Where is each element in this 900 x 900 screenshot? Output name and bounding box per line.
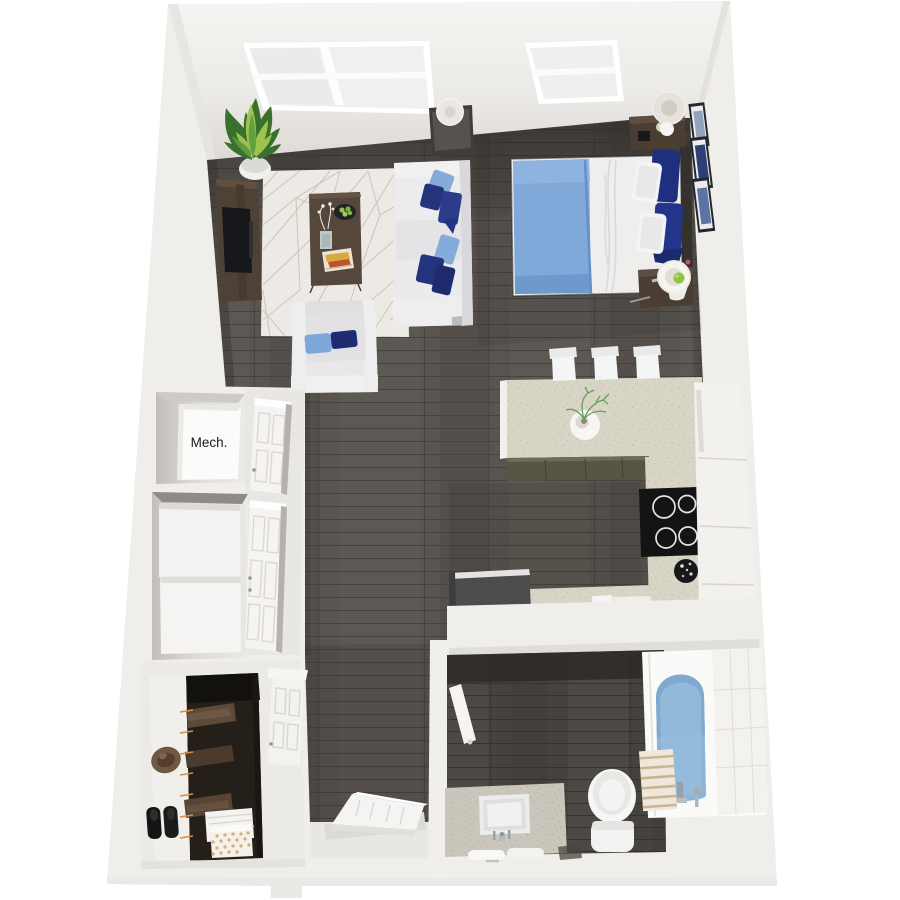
- svg-text:Mech.: Mech.: [191, 435, 228, 450]
